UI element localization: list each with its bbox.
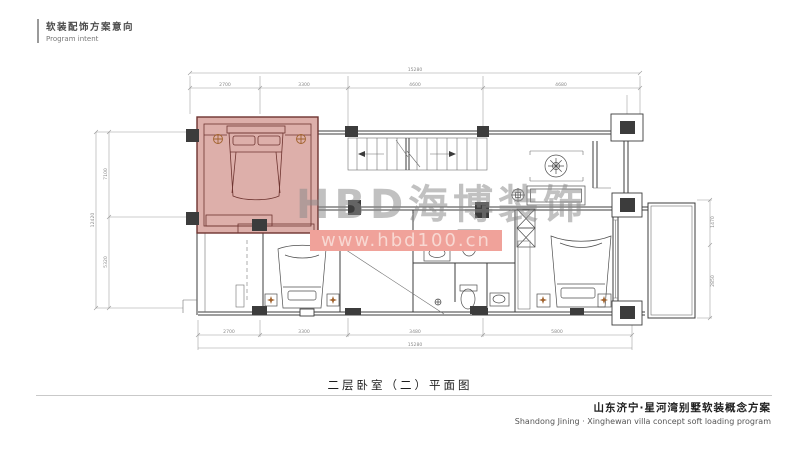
- toilet: [460, 285, 477, 309]
- stair-arrow-left: [358, 151, 384, 157]
- dim-bottom-seg4: 5800: [551, 329, 563, 335]
- dim-bottom-seg2: 3300: [298, 329, 310, 335]
- project-title-en: Shandong Jining · Xinghewan villa concep…: [515, 417, 771, 426]
- table-lamp: [297, 135, 306, 144]
- radiator: [518, 241, 530, 309]
- table-lamp: [214, 135, 223, 144]
- lamp-symbol: [267, 296, 275, 304]
- staircase: [348, 138, 487, 170]
- watermark-url: www.hbd100.cn: [321, 232, 491, 250]
- lamp-symbol: [329, 296, 337, 304]
- dim-left-overall: 12420: [90, 213, 96, 228]
- watermark-url-bar: www.hbd100.cn: [310, 230, 502, 251]
- dim-top-seg3: 4600: [409, 82, 421, 88]
- watermark-brand: HBD海博装饰: [296, 185, 588, 225]
- bed: [551, 236, 611, 307]
- dim-bottom-seg1: 2700: [223, 329, 235, 335]
- bed: [278, 245, 326, 308]
- footer-block: 山东济宁·星河湾别墅软装概念方案 Shandong Jining · Xingh…: [515, 400, 771, 426]
- stair-arrow-right: [430, 151, 456, 157]
- dim-top-overall: 15280: [408, 67, 423, 73]
- floor-drain: [435, 299, 441, 305]
- dim-top-seg4: 4680: [555, 82, 567, 88]
- dim-top-seg2: 3300: [298, 82, 310, 88]
- dim-bottom-seg3: 3480: [409, 329, 421, 335]
- dim-right-seg1: 1470: [710, 216, 716, 228]
- dim-left-seg1: 7100: [103, 168, 109, 180]
- dim-bottom-overall: 15280: [408, 342, 423, 348]
- dim-top-seg1: 2700: [219, 82, 231, 88]
- lamp-symbol: [539, 296, 547, 304]
- slide: { "header": { "title_cn": "软装配饰方案意向", "t…: [0, 0, 800, 450]
- footer-divider: [36, 395, 772, 396]
- lamp-symbol: [600, 296, 608, 304]
- plant-ornament: [545, 155, 567, 177]
- drawing-caption: 二层卧室（二）平面图: [12, 377, 788, 393]
- sink: [490, 293, 509, 306]
- project-title-cn: 山东济宁·星河湾别墅软装概念方案: [515, 400, 771, 415]
- dim-right-seg2: 2850: [710, 275, 716, 287]
- dim-left-seg2: 5320: [103, 256, 109, 268]
- door-threshold: [300, 309, 314, 316]
